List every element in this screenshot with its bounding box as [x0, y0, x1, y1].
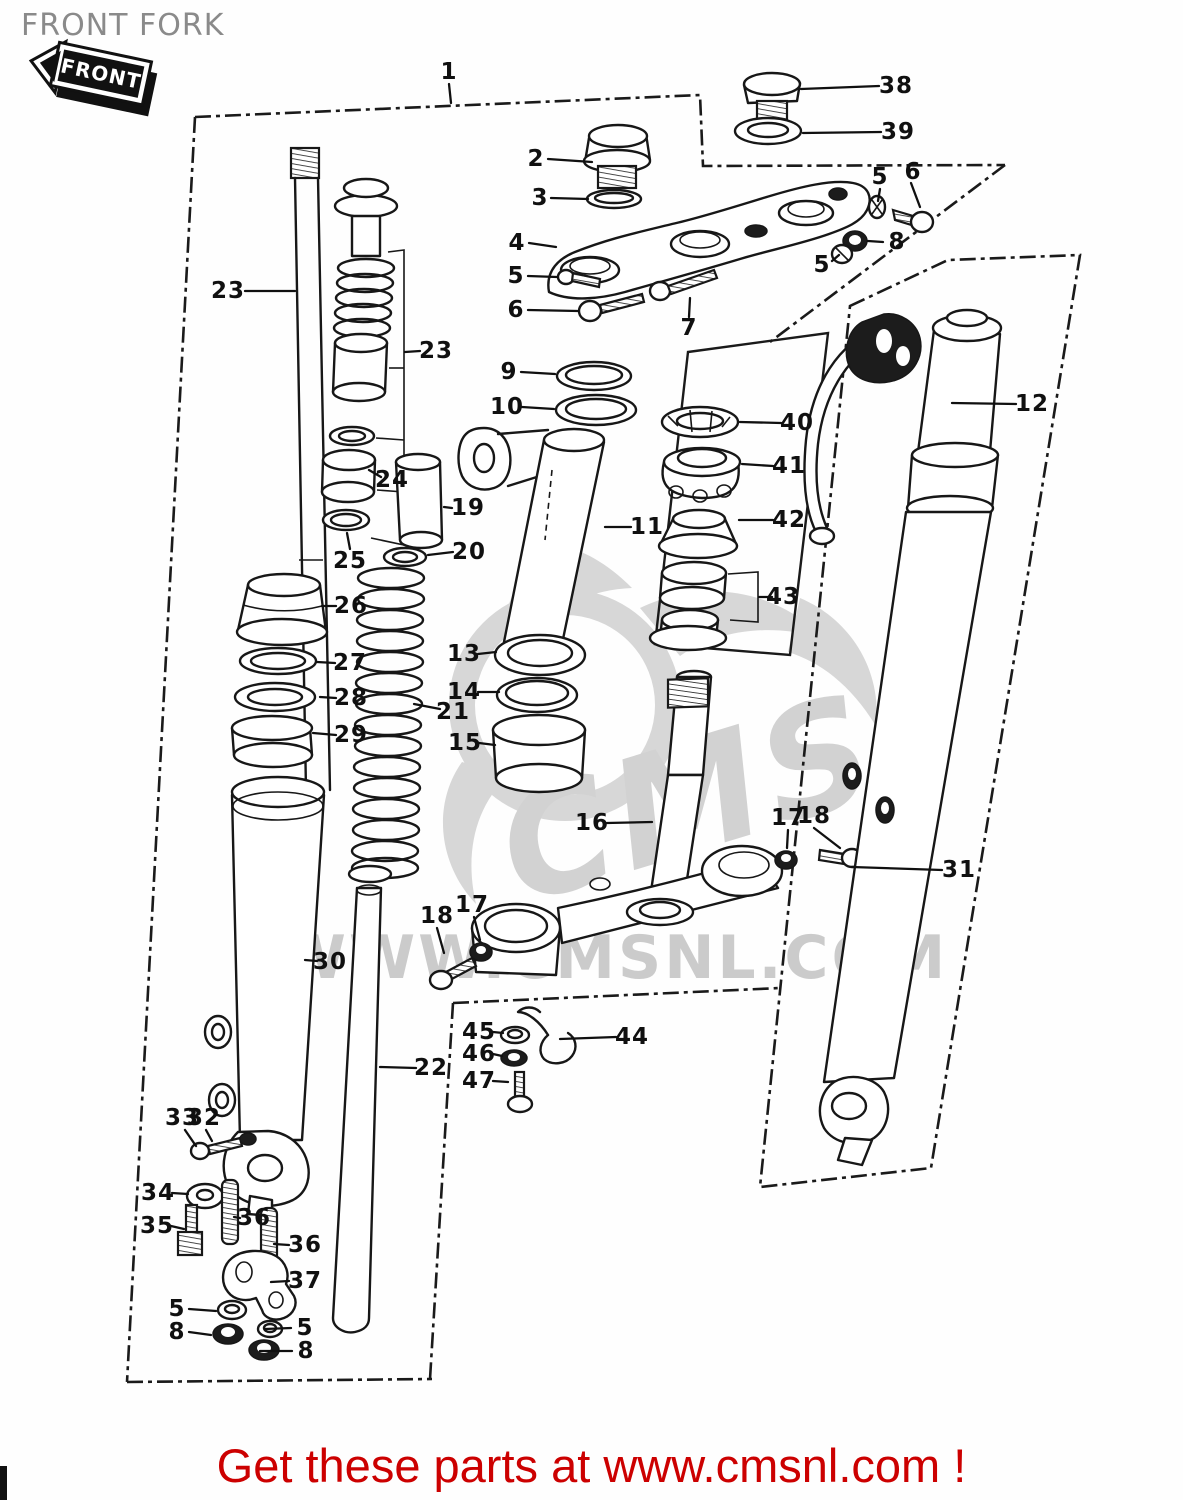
front-direction-badge: FRONT	[25, 35, 160, 116]
part-label-47: 47	[462, 1068, 496, 1094]
part-label-24: 24	[375, 467, 409, 493]
leader-line-22	[380, 1067, 416, 1068]
part-label-18-left: 18	[420, 903, 454, 929]
cmsnl-banner: Get these parts at www.cmsnl.com !	[0, 1438, 1183, 1493]
front-fork-diagram: CMS WWW.CMSNL.COM FRONT	[0, 0, 1183, 1500]
screenshot-root: FRONT FORK CMS WWW.CMSNL.COM	[0, 0, 1183, 1500]
leader-line-8-bl1	[189, 1332, 211, 1335]
leader-line-38	[801, 86, 879, 89]
corner-mark	[0, 1466, 7, 1500]
leader-line-39	[803, 132, 881, 133]
part-label-38: 38	[879, 73, 913, 99]
leader-line-16	[607, 822, 652, 823]
part-label-20: 20	[452, 539, 486, 565]
part-label-5-left: 5	[507, 263, 524, 289]
parts-artwork	[178, 73, 1001, 1360]
part-label-28: 28	[334, 685, 368, 711]
part-label-29: 29	[334, 722, 368, 748]
part-label-10: 10	[490, 394, 524, 420]
top-bolt-2-3	[584, 125, 650, 208]
leader-line-20	[428, 552, 453, 555]
part-label-17-left: 17	[455, 892, 489, 918]
part-label-19: 19	[451, 495, 485, 521]
leader-line-8-top	[868, 241, 883, 242]
part-label-9: 9	[500, 359, 517, 385]
part-label-31: 31	[942, 857, 976, 883]
leader-line-5-bl1	[189, 1309, 216, 1311]
leader-line-5-left	[528, 276, 557, 277]
part-label-4: 4	[508, 230, 525, 256]
part-label-2: 2	[527, 146, 544, 172]
tube-top-cap	[291, 148, 319, 178]
part-label-40: 40	[780, 410, 814, 436]
part-label-26: 26	[334, 593, 368, 619]
part-label-6-top: 6	[904, 159, 921, 185]
leader-line-32	[206, 1130, 212, 1141]
part-label-12: 12	[1015, 391, 1049, 417]
part-label-42: 42	[772, 507, 806, 533]
leader-line-4	[529, 243, 556, 247]
part-label-34: 34	[141, 1180, 175, 1206]
leader-line-3	[551, 198, 588, 199]
frame-bottom	[127, 1379, 432, 1382]
part-label-36-lower: 36	[288, 1232, 322, 1258]
leader-line-40	[740, 422, 781, 423]
rings-9-10	[556, 362, 636, 425]
leader-line-6-left	[528, 310, 578, 311]
part-label-23-left: 23	[211, 278, 245, 304]
leader-line-5-bl2	[265, 1328, 291, 1329]
part-label-41: 41	[772, 453, 806, 479]
part-label-18-right: 18	[797, 803, 831, 829]
axle-clip-group	[501, 1008, 575, 1113]
leader-line-33	[185, 1130, 196, 1146]
part-label-23-right: 23	[419, 338, 453, 364]
part-label-21: 21	[436, 699, 470, 725]
part-label-44: 44	[615, 1024, 649, 1050]
part-label-36-upper: 36	[237, 1205, 271, 1231]
part-label-13: 13	[447, 641, 481, 667]
left-fork-seals	[232, 574, 327, 767]
stem-cap-38-39	[735, 73, 801, 144]
part-label-46: 46	[462, 1041, 496, 1067]
part-label-5-mid: 5	[813, 252, 830, 278]
leader-line-12	[952, 403, 1016, 404]
part-label-8-bl2: 8	[297, 1338, 314, 1364]
part-label-16: 16	[575, 810, 609, 836]
part-label-43: 43	[766, 584, 800, 610]
leader-line-17-right	[787, 830, 788, 848]
leader-line-23-right	[405, 351, 420, 352]
part-label-35: 35	[140, 1213, 174, 1239]
leader-line-29	[313, 733, 336, 735]
part-label-39: 39	[881, 119, 915, 145]
part-label-6-left: 6	[507, 297, 524, 323]
part-label-37: 37	[288, 1268, 322, 1294]
leader-line-36-lower	[274, 1244, 289, 1245]
races-13-14-15	[493, 635, 585, 792]
leader-line-10	[522, 407, 554, 409]
leader-line-41	[742, 464, 773, 466]
part-label-7: 7	[680, 315, 697, 341]
leader-line-44	[560, 1037, 616, 1039]
leader-line-37	[271, 1281, 289, 1282]
leader-line-9	[521, 372, 555, 374]
part-label-25: 25	[333, 548, 367, 574]
part-label-15: 15	[448, 730, 482, 756]
part-label-27: 27	[333, 650, 367, 676]
leader-line-25	[347, 533, 350, 549]
part-label-30: 30	[313, 949, 347, 975]
part-label-8-bl1: 8	[168, 1319, 185, 1345]
part-label-8-top: 8	[888, 229, 905, 255]
part-label-22: 22	[414, 1055, 448, 1081]
part-label-3: 3	[531, 185, 548, 211]
part-label-1: 1	[440, 59, 457, 85]
leader-line-6-top	[911, 183, 920, 207]
part-label-5-top: 5	[871, 164, 888, 190]
part-label-11: 11	[630, 514, 664, 540]
leader-line-1	[449, 84, 451, 103]
part-label-32: 32	[187, 1105, 221, 1131]
clamp-bolts-right	[775, 849, 862, 869]
